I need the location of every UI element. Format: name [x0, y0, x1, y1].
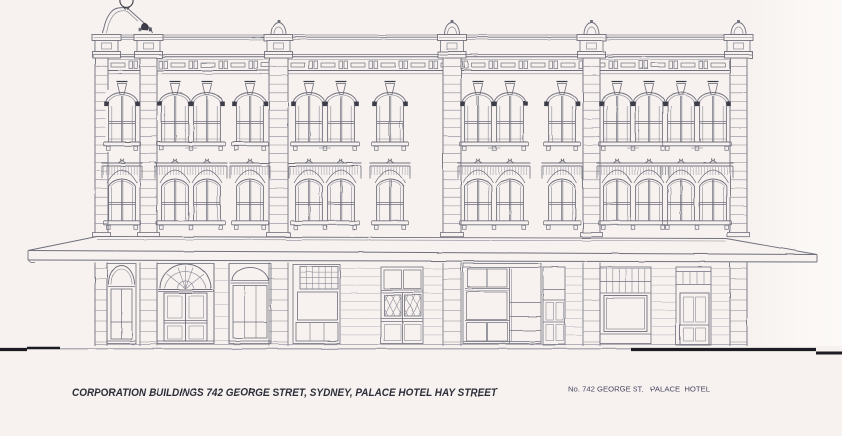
svg-text:CORPORATION BUILDINGS 742 GEOR: CORPORATION BUILDINGS 742 GEORGE STRET, … [72, 387, 498, 399]
svg-text:No. 742 GEORGE ST. PALACE H: No. 742 GEORGE ST. PALACE HOTEL [568, 385, 710, 394]
